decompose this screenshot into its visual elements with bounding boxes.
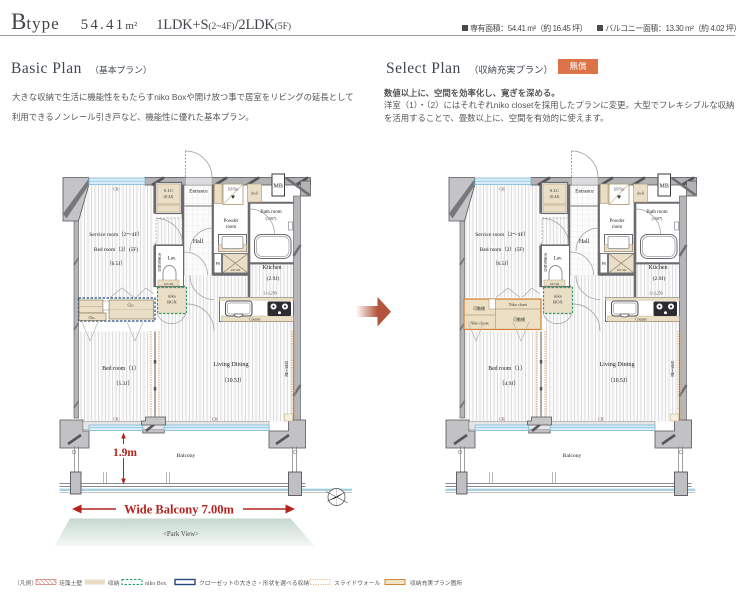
svg-text:スライドウォール: スライドウォール	[334, 579, 381, 587]
svg-text:Entrance: Entrance	[189, 189, 208, 195]
svg-text:Kitchen: Kitchen	[649, 265, 668, 271]
svg-text:収納: 収納	[108, 579, 120, 587]
svg-text:珪藻土壁: 珪藻土壁	[59, 579, 82, 587]
svg-text:珪藻土壁: 珪藻土壁	[285, 360, 289, 377]
svg-text:Service room（2～4F）: Service room（2～4F）	[89, 231, 142, 238]
svg-text:Bath room: Bath room	[260, 210, 281, 215]
svg-text:CR: CR	[113, 187, 119, 192]
svg-text:S.I.C: S.I.C	[550, 188, 559, 193]
svg-text:1.9m: 1.9m	[113, 447, 137, 459]
svg-text:UP/5m: UP/5m	[228, 188, 239, 192]
svg-text:Bed room（2）(5F): Bed room（2）(5F)	[94, 246, 138, 253]
svg-text:Bed room（1）: Bed room（1）	[488, 365, 526, 372]
svg-text:MB: MB	[274, 184, 283, 190]
svg-text:niko: niko	[168, 294, 177, 299]
svg-text:Balcony: Balcony	[177, 453, 196, 459]
svg-text:Balcony: Balcony	[563, 453, 582, 459]
svg-text:room: room	[612, 225, 622, 230]
svg-text:niko: niko	[554, 294, 563, 299]
svg-text:（10.5J）: （10.5J）	[607, 377, 631, 384]
svg-text:Wide Balcony 7.00m: Wide Balcony 7.00m	[124, 503, 234, 517]
svg-text:Entrance: Entrance	[575, 189, 594, 195]
svg-text:Kitchen: Kitchen	[263, 265, 282, 271]
svg-text:UP/3m: UP/3m	[231, 268, 241, 272]
svg-text:クローゼットの大きさ・形状を選べる収納: クローゼットの大きさ・形状を選べる収納	[199, 579, 309, 587]
svg-text:room: room	[226, 225, 236, 230]
svg-text:Living Dining: Living Dining	[599, 361, 634, 368]
svg-text:niko Box: niko Box	[145, 581, 167, 587]
svg-text:Counter: Counter	[635, 318, 647, 322]
svg-text:CR: CR	[499, 187, 505, 192]
svg-text:Hall: Hall	[193, 239, 204, 245]
svg-text:Powder: Powder	[610, 219, 625, 224]
svg-text:(2.9J): (2.9J)	[267, 275, 280, 282]
svg-text:珪藻土壁: 珪藻土壁	[671, 360, 675, 377]
svg-text:CR: CR	[212, 417, 218, 422]
svg-text:<Park View>: <Park View>	[163, 531, 199, 538]
svg-text:（凡例）: （凡例）	[14, 579, 37, 587]
svg-text:UP/5m: UP/5m	[614, 188, 625, 192]
svg-text:（6.5J）: （6.5J）	[106, 260, 126, 267]
svg-text:(0.4J): (0.4J)	[550, 194, 560, 199]
svg-text:CR: CR	[113, 417, 119, 422]
svg-text:shelf: shelf	[251, 192, 259, 196]
svg-text:Niko closet: Niko closet	[470, 321, 489, 326]
svg-text:Bath room: Bath room	[646, 210, 667, 215]
svg-text:UP/3m: UP/3m	[164, 282, 174, 286]
svg-text:BOX: BOX	[167, 300, 177, 305]
svg-text:Bed room（1）: Bed room（1）	[102, 365, 140, 372]
svg-text:可動棚: 可動棚	[513, 316, 525, 322]
svg-text:Living Dining: Living Dining	[213, 361, 248, 368]
svg-text:Powder: Powder	[224, 219, 239, 224]
svg-text:Clo.: Clo.	[88, 315, 95, 320]
svg-text:S.I.C: S.I.C	[164, 188, 173, 193]
svg-text:Service room（2～4F）: Service room（2～4F）	[475, 231, 528, 238]
svg-text:(2.9J): (2.9J)	[653, 275, 666, 282]
svg-text:PS: PS	[215, 261, 220, 266]
svg-text:収納充実プラン箇所: 収納充実プラン箇所	[410, 579, 462, 587]
svg-text:CR: CR	[598, 417, 604, 422]
svg-text:UP/3m: UP/3m	[550, 282, 560, 286]
svg-text:Lav.: Lav.	[554, 257, 563, 262]
svg-text:可動棚: 可動棚	[473, 305, 485, 311]
svg-text:（4.9J）: （4.9J）	[499, 380, 519, 387]
svg-text:BOX: BOX	[553, 300, 563, 305]
svg-text:UP/3m: UP/3m	[617, 268, 627, 272]
svg-text:Bed room（2）(5F): Bed room（2）(5F)	[480, 246, 524, 253]
svg-text:Hall: Hall	[579, 239, 590, 245]
svg-text:MB: MB	[660, 184, 669, 190]
svg-text:（5.3J）: （5.3J）	[113, 380, 133, 387]
svg-text:shelf: shelf	[637, 192, 645, 196]
svg-text:CR: CR	[499, 417, 505, 422]
svg-text:Counter: Counter	[249, 318, 261, 322]
svg-text:Niko closet: Niko closet	[509, 302, 528, 307]
svg-text:（10.5J）: （10.5J）	[221, 377, 245, 384]
svg-text:Clo.: Clo.	[127, 303, 134, 308]
svg-text:(0.4J): (0.4J)	[164, 194, 174, 199]
svg-text:（6.5J）: （6.5J）	[492, 260, 512, 267]
svg-text:PS: PS	[601, 261, 606, 266]
svg-text:Lav.: Lav.	[168, 257, 177, 262]
